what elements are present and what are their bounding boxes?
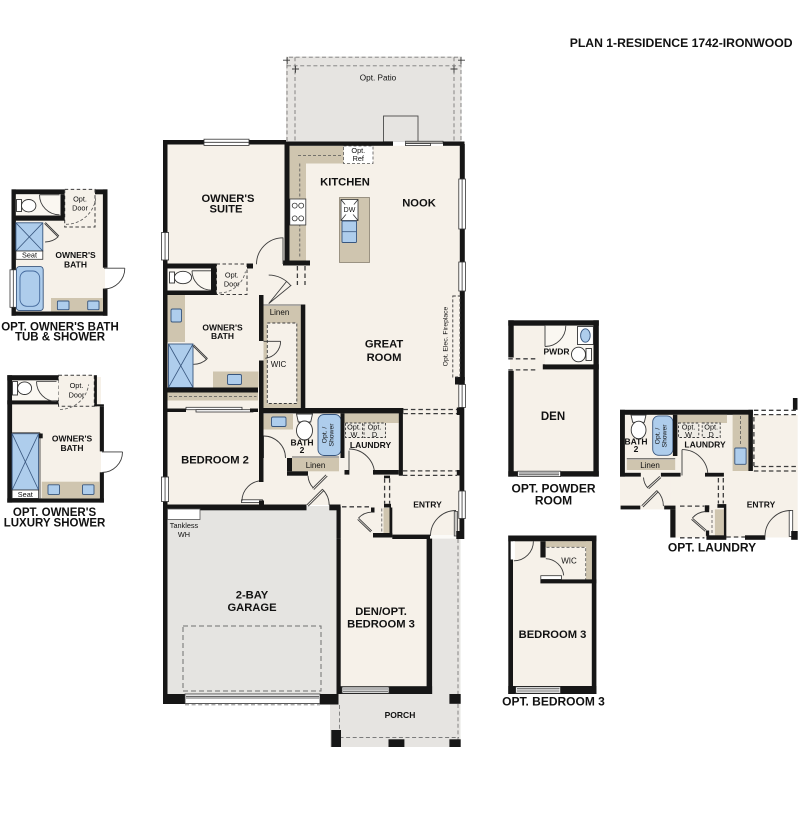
svg-text:ROOM: ROOM [367,352,402,364]
svg-text:W: W [685,430,692,439]
svg-text:Linen: Linen [306,461,326,470]
svg-text:LAUNDRY: LAUNDRY [350,440,392,450]
svg-text:GREAT: GREAT [365,339,403,351]
svg-text:Door: Door [224,280,240,289]
svg-text:ROOM: ROOM [535,494,572,508]
svg-text:2-BAY: 2-BAY [236,590,269,602]
svg-text:Opt. Patio: Opt. Patio [360,74,397,83]
svg-text:OPT. LAUNDRY: OPT. LAUNDRY [668,540,756,554]
svg-text:BATH: BATH [61,443,84,453]
svg-text:Linen: Linen [640,461,660,470]
svg-text:BATH: BATH [211,331,234,341]
svg-text:WIC: WIC [561,557,577,566]
svg-text:KITCHEN: KITCHEN [320,177,370,189]
svg-text:ENTRY: ENTRY [747,499,776,509]
svg-text:TUB & SHOWER: TUB & SHOWER [15,332,106,344]
svg-text:Opt.: Opt. [225,271,239,280]
svg-text:WH: WH [178,530,190,539]
svg-text:Shower: Shower [661,424,668,448]
svg-text:PORCH: PORCH [385,710,416,720]
svg-text:SUITE: SUITE [210,203,243,215]
svg-text:Opt.: Opt. [73,195,87,204]
svg-text:2: 2 [634,444,639,454]
svg-text:BEDROOM 2: BEDROOM 2 [181,455,249,467]
svg-text:BATH: BATH [64,259,87,269]
svg-text:DEN/OPT.: DEN/OPT. [355,606,407,618]
svg-text:W: W [351,430,358,439]
svg-text:2: 2 [300,445,305,455]
svg-text:PLAN 1-RESIDENCE 1742-IRONWOOD: PLAN 1-RESIDENCE 1742-IRONWOOD [570,36,793,50]
svg-text:Shower: Shower [328,423,335,447]
svg-text:NOOK: NOOK [402,198,436,210]
svg-text:Seat: Seat [18,490,33,499]
svg-text:Opt.: Opt. [70,381,84,390]
svg-text:OPT. BEDROOM 3: OPT. BEDROOM 3 [502,695,605,709]
svg-text:DW: DW [344,207,356,214]
svg-text:D: D [709,430,714,439]
svg-text:Seat: Seat [22,251,37,260]
svg-text:WIC: WIC [271,360,287,369]
svg-text:GARAGE: GARAGE [227,602,277,614]
svg-text:LAUNDRY: LAUNDRY [684,440,726,450]
svg-text:ENTRY: ENTRY [413,499,442,509]
svg-text:PWDR: PWDR [544,347,570,357]
svg-text:Tankless: Tankless [170,521,199,530]
svg-text:Door: Door [72,204,88,213]
svg-text:LUXURY SHOWER: LUXURY SHOWER [4,518,106,530]
svg-text:BEDROOM 3: BEDROOM 3 [347,619,415,631]
svg-text:Opt. /: Opt. / [321,427,328,444]
svg-text:BEDROOM 3: BEDROOM 3 [519,629,587,641]
svg-text:Ref: Ref [353,154,365,163]
svg-text:Opt. /: Opt. / [654,428,661,445]
svg-text:Linen: Linen [270,308,290,317]
svg-text:DEN: DEN [541,411,565,423]
svg-text:D: D [372,430,377,439]
svg-text:Opt. Elec. Fireplace: Opt. Elec. Fireplace [443,306,450,366]
